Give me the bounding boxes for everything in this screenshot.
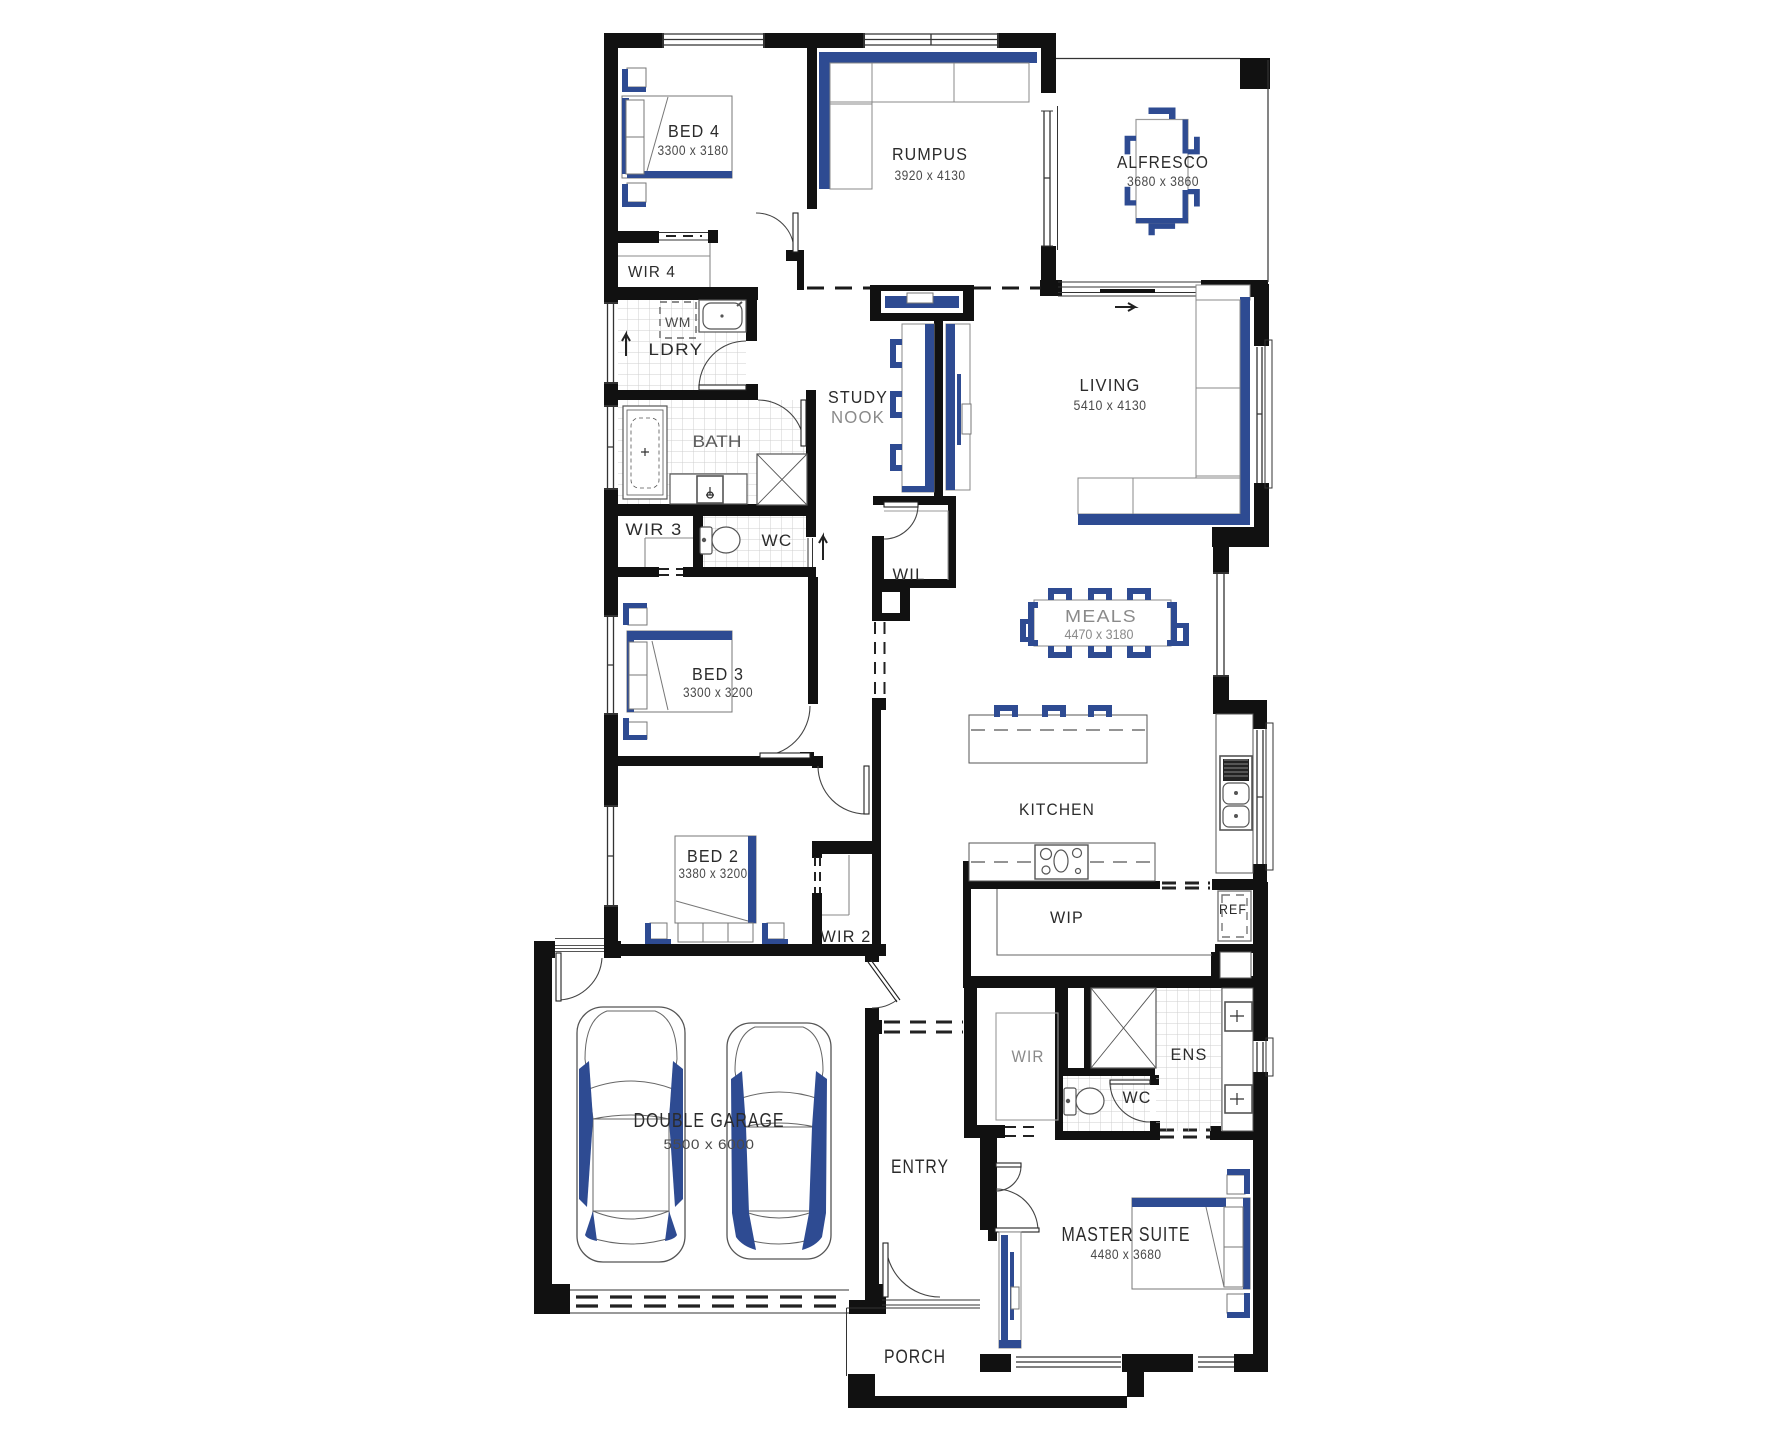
svg-text:MEALS: MEALS [1065,606,1137,626]
svg-text:BED 3: BED 3 [692,664,744,684]
svg-text:ALFRESCO: ALFRESCO [1117,152,1209,172]
svg-text:WIR 4: WIR 4 [628,264,676,281]
svg-text:3680 x 3860: 3680 x 3860 [1127,174,1199,189]
svg-text:DOUBLE GARAGE: DOUBLE GARAGE [634,1109,785,1132]
svg-text:BED 2: BED 2 [687,846,739,866]
svg-text:WC: WC [762,532,793,550]
svg-text:KITCHEN: KITCHEN [1019,801,1095,819]
svg-text:3300 x 3200: 3300 x 3200 [683,685,753,700]
svg-text:LIVING: LIVING [1080,375,1141,395]
svg-text:3380 x 3200: 3380 x 3200 [679,866,748,881]
svg-text:3300 x 3180: 3300 x 3180 [658,143,729,158]
svg-text:WIR 3: WIR 3 [626,521,683,539]
svg-text:5410 x 4130: 5410 x 4130 [1074,398,1147,413]
svg-text:5500 x 6000: 5500 x 6000 [664,1136,755,1152]
svg-text:MASTER SUITE: MASTER SUITE [1062,1223,1191,1246]
svg-text:WIP: WIP [1050,909,1084,927]
svg-text:LDRY: LDRY [649,341,704,359]
svg-text:STUDY: STUDY [828,387,888,407]
svg-text:WC: WC [1123,1089,1152,1107]
svg-text:REF: REF [1219,901,1247,917]
svg-text:NOOK: NOOK [831,407,885,427]
svg-text:BED 4: BED 4 [668,121,720,141]
svg-text:WIR: WIR [1012,1048,1045,1066]
svg-text:ENS: ENS [1171,1046,1208,1064]
svg-text:WM: WM [665,314,691,330]
svg-text:RUMPUS: RUMPUS [892,144,968,164]
svg-text:ENTRY: ENTRY [891,1156,949,1178]
svg-text:3920 x 4130: 3920 x 4130 [895,168,966,183]
svg-text:WIL: WIL [893,566,926,584]
svg-text:WIR 2: WIR 2 [821,928,872,946]
svg-text:PORCH: PORCH [884,1346,946,1368]
svg-text:4470 x 3180: 4470 x 3180 [1065,627,1134,642]
svg-text:BATH: BATH [693,433,742,451]
svg-text:4480 x 3680: 4480 x 3680 [1091,1246,1162,1262]
